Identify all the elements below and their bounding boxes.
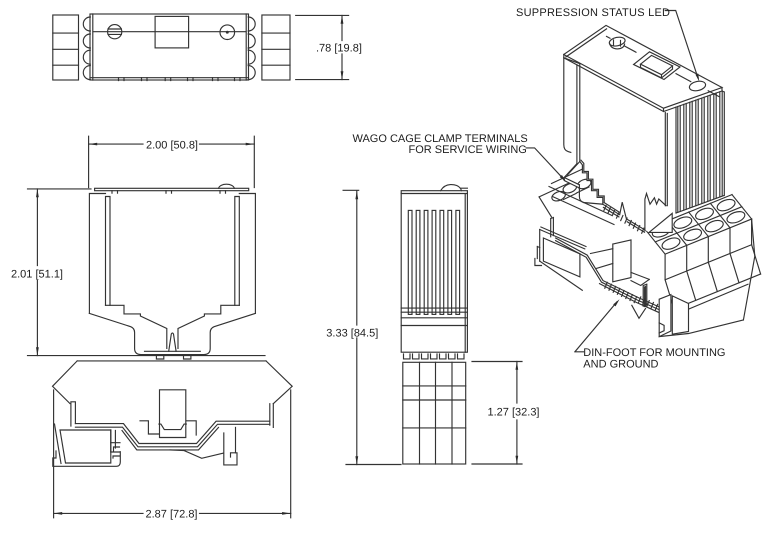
svg-text:2.01 [51.1]: 2.01 [51.1] <box>11 269 63 281</box>
svg-text:1.27 [32.3]: 1.27 [32.3] <box>488 407 540 419</box>
svg-text:3.33 [84.5]: 3.33 [84.5] <box>326 328 378 340</box>
svg-text:FOR SERVICE WIRING: FOR SERVICE WIRING <box>409 144 527 156</box>
svg-text:DIN-FOOT FOR MOUNTING: DIN-FOOT FOR MOUNTING <box>583 347 725 359</box>
svg-text:SUPPRESSION STATUS LED: SUPPRESSION STATUS LED <box>516 7 670 19</box>
svg-text:2.00 [50.8]: 2.00 [50.8] <box>146 140 198 152</box>
svg-text:AND GROUND: AND GROUND <box>583 359 658 371</box>
svg-text:.78 [19.8]: .78 [19.8] <box>316 43 362 55</box>
svg-text:2.87 [72.8]: 2.87 [72.8] <box>146 509 198 521</box>
